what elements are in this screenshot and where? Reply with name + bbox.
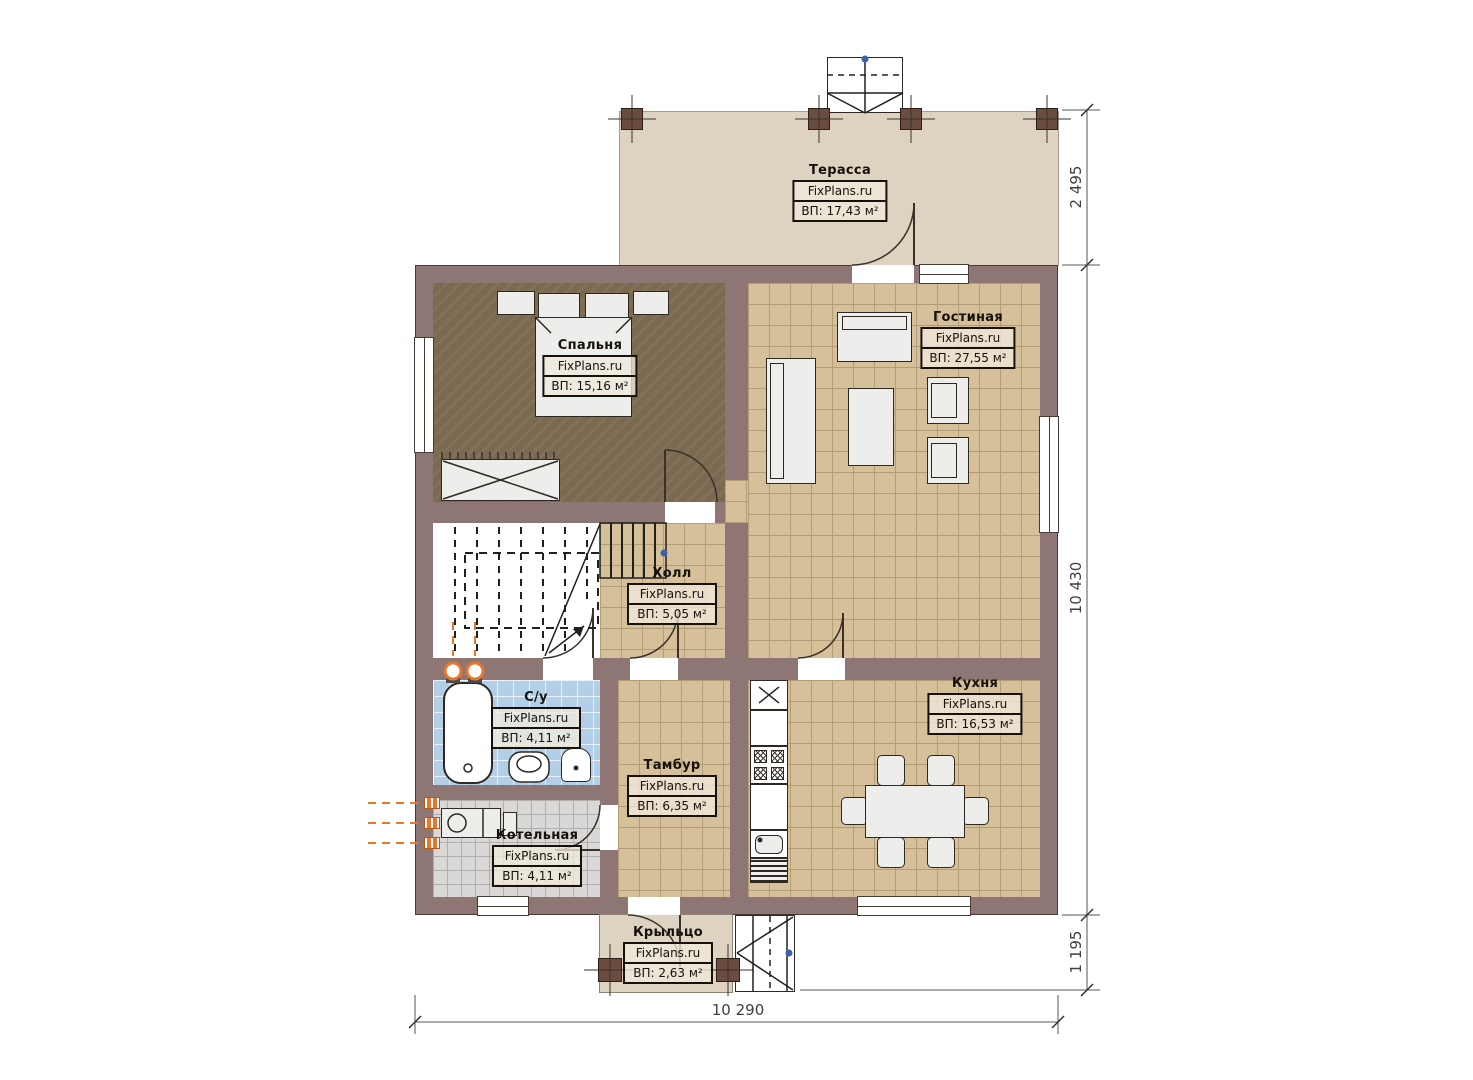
radiator [424,837,440,849]
watermark-text: FixPlans.ru [929,695,1020,715]
room-name: Котельная [496,828,578,843]
room-label-tambour: Тамбур FixPlans.ru ВП: 6,35 м² [627,758,717,817]
bedroom-door-gap [665,502,715,523]
floor-plan-canvas: Терасса FixPlans.ru ВП: 17,43 м² Спальня… [0,0,1473,1080]
room-area: ВП: 6,35 м² [629,797,715,815]
watermark-text: FixPlans.ru [544,357,635,377]
porch-exterior-steps [735,915,795,992]
chair [927,837,955,868]
room-area: ВП: 15,16 м² [544,377,635,395]
counter-cabinet [750,710,788,746]
room-name: Тамбур [644,758,701,773]
room-label-porch: Крыльцо FixPlans.ru ВП: 2,63 м² [623,925,713,984]
armchair [927,377,969,424]
kitchen-window [858,897,970,915]
pillow [585,293,629,318]
room-name: Терасса [809,163,871,178]
room-area: ВП: 17,43 м² [794,202,885,220]
chair [877,837,905,868]
room-name: Холл [652,566,691,581]
room-label-bedroom: Спальня FixPlans.ru ВП: 15,16 м² [542,338,637,397]
bathroom-door-gap [543,658,593,680]
dim-porch-depth: 1 195 [1067,931,1085,974]
dim-terrace-depth: 2 495 [1067,166,1085,209]
watermark-box: FixPlans.ru ВП: 15,16 м² [542,355,637,397]
living-room-window [1040,417,1058,532]
watermark-text: FixPlans.ru [629,585,715,605]
wardrobe-hatch [441,452,560,459]
room-area: ВП: 5,05 м² [629,605,715,623]
armchair [927,437,969,484]
terrace-post [621,108,643,130]
dining-table [865,785,965,838]
dim-house-width: 10 290 [712,1001,765,1019]
counter-cabinet-x [750,680,788,710]
porch-post [716,958,740,982]
room-name: Крыльцо [633,925,703,940]
watermark-text: FixPlans.ru [625,944,711,964]
stove [750,746,788,784]
chair [927,755,955,786]
room-label-boiler: Котельная FixPlans.ru ВП: 4,11 м² [492,828,582,887]
radiator [424,817,440,829]
room-label-living: Гостиная FixPlans.ru ВП: 27,55 м² [920,310,1015,369]
watermark-box: FixPlans.ru ВП: 27,55 м² [920,327,1015,369]
sofa-left [766,358,816,484]
watermark-box: FixPlans.ru ВП: 6,35 м² [627,775,717,817]
sofa-top [837,312,912,362]
terrace-exterior-stairs [827,57,903,113]
chair [841,797,868,825]
dishwasher [750,858,788,883]
kitchen-sink [750,830,788,858]
counter-cabinet [750,784,788,830]
watermark-text: FixPlans.ru [493,709,579,729]
watermark-box: FixPlans.ru ВП: 2,63 м² [623,942,713,984]
room-name: Гостиная [933,310,1003,325]
nightstand [497,291,535,315]
room-label-kitchen: Кухня FixPlans.ru ВП: 16,53 м² [927,676,1022,735]
watermark-text: FixPlans.ru [494,847,580,867]
boiler-door-gap [600,805,618,850]
kitchen-counter [750,680,788,883]
terrace-post [900,108,922,130]
coffee-table [848,388,894,466]
room-label-terrace: Терасса FixPlans.ru ВП: 17,43 м² [792,163,887,222]
hall-living-opening [725,480,748,523]
room-label-hall: Холл FixPlans.ru ВП: 5,05 м² [627,566,717,625]
room-area: ВП: 2,63 м² [625,964,711,982]
bedroom-window [415,338,433,452]
watermark-box: FixPlans.ru ВП: 5,05 м² [627,583,717,625]
bathtub [443,682,493,784]
watermark-box: FixPlans.ru ВП: 16,53 м² [927,693,1022,735]
chair [962,797,989,825]
tambour-door-gap [630,658,678,680]
room-name: Кухня [952,676,998,691]
room-area: ВП: 4,11 м² [494,867,580,885]
room-area: ВП: 4,11 м² [493,729,579,747]
entrance-door-gap [628,897,680,915]
pillow [538,293,580,318]
washbasin [561,748,591,782]
room-label-bathroom: С/у FixPlans.ru ВП: 4,11 м² [491,690,581,749]
watermark-text: FixPlans.ru [794,182,885,202]
watermark-text: FixPlans.ru [922,329,1013,349]
hall-floor [433,523,600,658]
watermark-box: FixPlans.ru ВП: 4,11 м² [492,845,582,887]
terrace-post [808,108,830,130]
wardrobe [441,459,560,501]
boiler-window [478,897,528,915]
living-terrace-window [920,265,968,283]
terrace-post [1036,108,1058,130]
room-area: ВП: 27,55 м² [922,349,1013,367]
watermark-text: FixPlans.ru [629,777,715,797]
nightstand [633,291,669,315]
terrace-door-gap [852,265,914,283]
watermark-box: FixPlans.ru ВП: 4,11 м² [491,707,581,749]
dim-house-length: 10 430 [1067,562,1085,615]
radiator [424,797,440,809]
porch-post [598,958,622,982]
room-name: С/у [524,690,548,705]
watermark-box: FixPlans.ru ВП: 17,43 м² [792,180,887,222]
chair [877,755,905,786]
kitchen-door-gap [798,658,845,680]
room-area: ВП: 16,53 м² [929,715,1020,733]
room-name: Спальня [558,338,622,353]
